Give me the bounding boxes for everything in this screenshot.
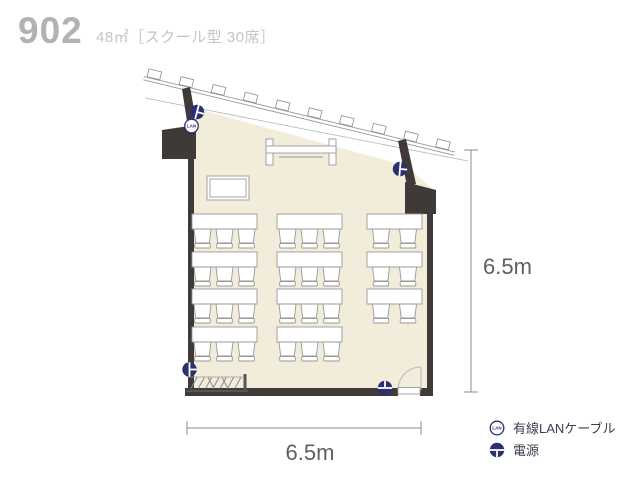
floor-plan: LAN [0,0,640,480]
chair [238,267,255,286]
chair [279,342,296,361]
chair-back [302,282,318,287]
chair [279,229,296,248]
chair [194,342,211,361]
chair-back [195,244,211,249]
chair-back [280,244,296,249]
whiteboard-board [266,146,336,153]
chair-back [239,319,255,324]
right-wall [427,210,433,394]
lectern-outer [207,176,249,200]
right-pillar [405,182,436,214]
chair [301,342,318,361]
chair [238,342,255,361]
chair-seat [279,304,296,318]
chair-back [373,319,389,324]
chair [194,304,211,323]
bottom-wall-stub [420,388,433,396]
power-icon [182,362,196,376]
chair [279,304,296,323]
chair-back [239,282,255,287]
desk [277,289,342,304]
chair [301,267,318,286]
chair-back [217,282,233,287]
chair [194,229,211,248]
width-dimension-label: 6.5m [286,440,335,465]
chair [323,229,340,248]
legend-power-label: 電源 [513,440,539,459]
chair-back [324,357,340,362]
power-icon [488,441,506,459]
chair-back [217,357,233,362]
chair-seat [323,229,340,243]
chair-back [324,282,340,287]
lan-icon [185,119,199,133]
chair-back [195,282,211,287]
chair-seat [216,342,233,356]
chair-seat [194,267,211,281]
chair-back [239,357,255,362]
chair-back [373,244,389,249]
desk [277,252,342,267]
chair-seat [194,304,211,318]
left-wall [188,106,194,394]
chair-seat [400,304,417,318]
chair-seat [373,267,390,281]
legend-lan-label: 有線LANケーブル [513,418,616,437]
chair [194,267,211,286]
chair-back [324,244,340,249]
chair-back [400,282,416,287]
chair-seat [194,342,211,356]
chair-seat [323,342,340,356]
chair [373,267,390,286]
chair-back [302,357,318,362]
chair-back [217,319,233,324]
chair-seat [216,229,233,243]
chair [238,304,255,323]
chair-seat [238,229,255,243]
chair-seat [400,267,417,281]
chair [400,304,417,323]
chair-back [280,319,296,324]
desk [367,289,422,304]
lectern-table [207,176,249,200]
chair [216,229,233,248]
chair-seat [301,267,318,281]
width-dimension [187,421,421,435]
chair-seat [216,267,233,281]
chair-seat [301,229,318,243]
desk [192,252,257,267]
chair-seat [238,342,255,356]
chair-seat [323,267,340,281]
chair-seat [301,304,318,318]
lan-icon [488,419,506,437]
door-leaf [398,388,420,395]
desk [277,327,342,342]
chair-seat [216,304,233,318]
height-dimension-label: 6.5m [483,254,532,279]
legend-row-lan: 有線LANケーブル [488,418,616,437]
chair [400,229,417,248]
chair [238,229,255,248]
chair-seat [323,304,340,318]
chair-back [302,319,318,324]
chair-seat [194,229,211,243]
chair-seat [279,342,296,356]
chair-back [239,244,255,249]
chair-seat [373,304,390,318]
chair [301,304,318,323]
chair [373,304,390,323]
desk [192,214,257,229]
desk [192,289,257,304]
chair-back [217,244,233,249]
chair [216,267,233,286]
desk [192,327,257,342]
chair-seat [301,342,318,356]
chair-seat [373,229,390,243]
chair [216,304,233,323]
chair [400,267,417,286]
legend-row-power: 電源 [488,440,616,459]
chair [279,267,296,286]
chair-back [195,357,211,362]
chair [301,229,318,248]
power-icon [378,381,392,395]
chair-back [195,319,211,324]
desk [277,214,342,229]
chair-back [280,357,296,362]
chair-back [400,319,416,324]
chair-seat [400,229,417,243]
chair-back [324,319,340,324]
chair [323,304,340,323]
chair-seat [279,267,296,281]
chair-seat [238,267,255,281]
desk [367,252,422,267]
height-dimension [464,150,478,392]
legend: 有線LANケーブル 電源 [488,418,616,459]
chair-back [373,282,389,287]
chair-seat [279,229,296,243]
chair [323,342,340,361]
chair-back [280,282,296,287]
chair-back [302,244,318,249]
chair-back [400,244,416,249]
chair [216,342,233,361]
chair [373,229,390,248]
chair [323,267,340,286]
desk [367,214,422,229]
chair-seat [238,304,255,318]
